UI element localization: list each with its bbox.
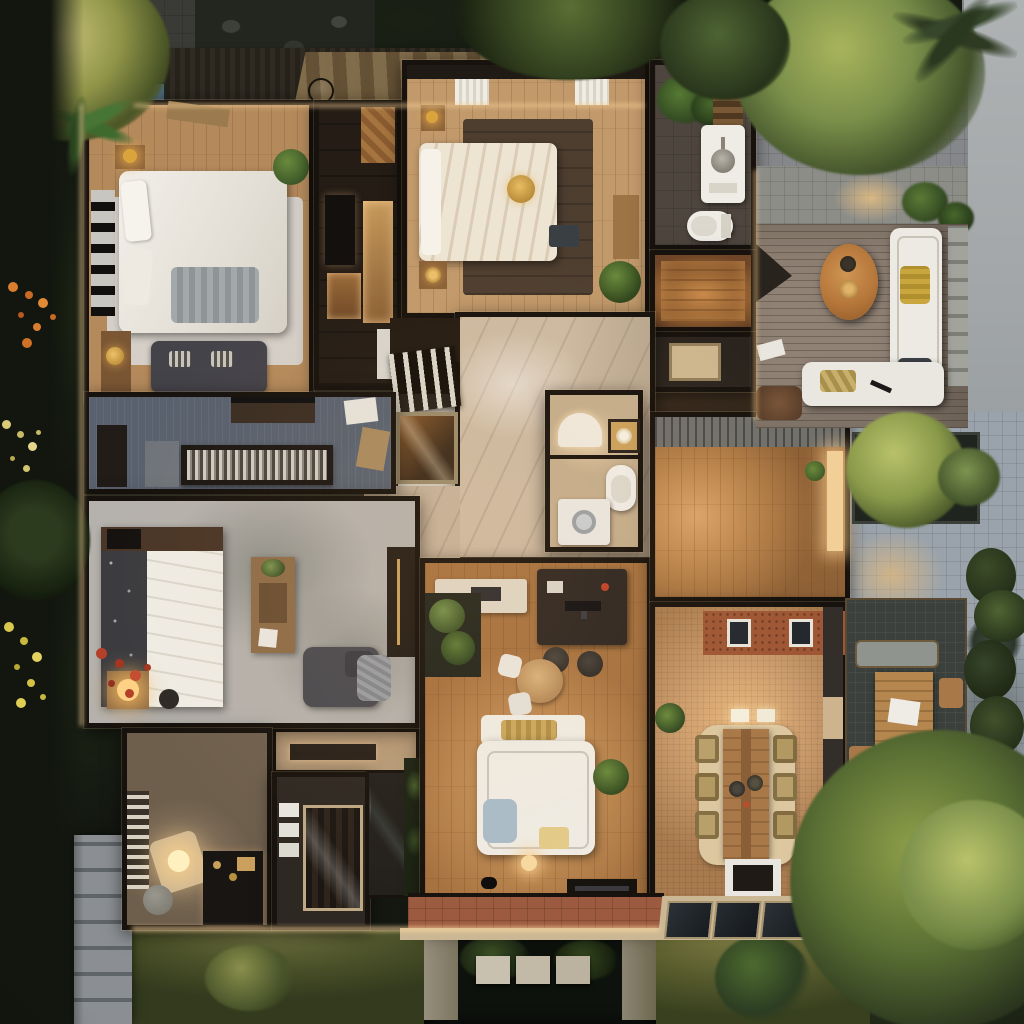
aerial-floorplan-scene <box>0 0 1024 1024</box>
vignette <box>0 0 1024 1024</box>
